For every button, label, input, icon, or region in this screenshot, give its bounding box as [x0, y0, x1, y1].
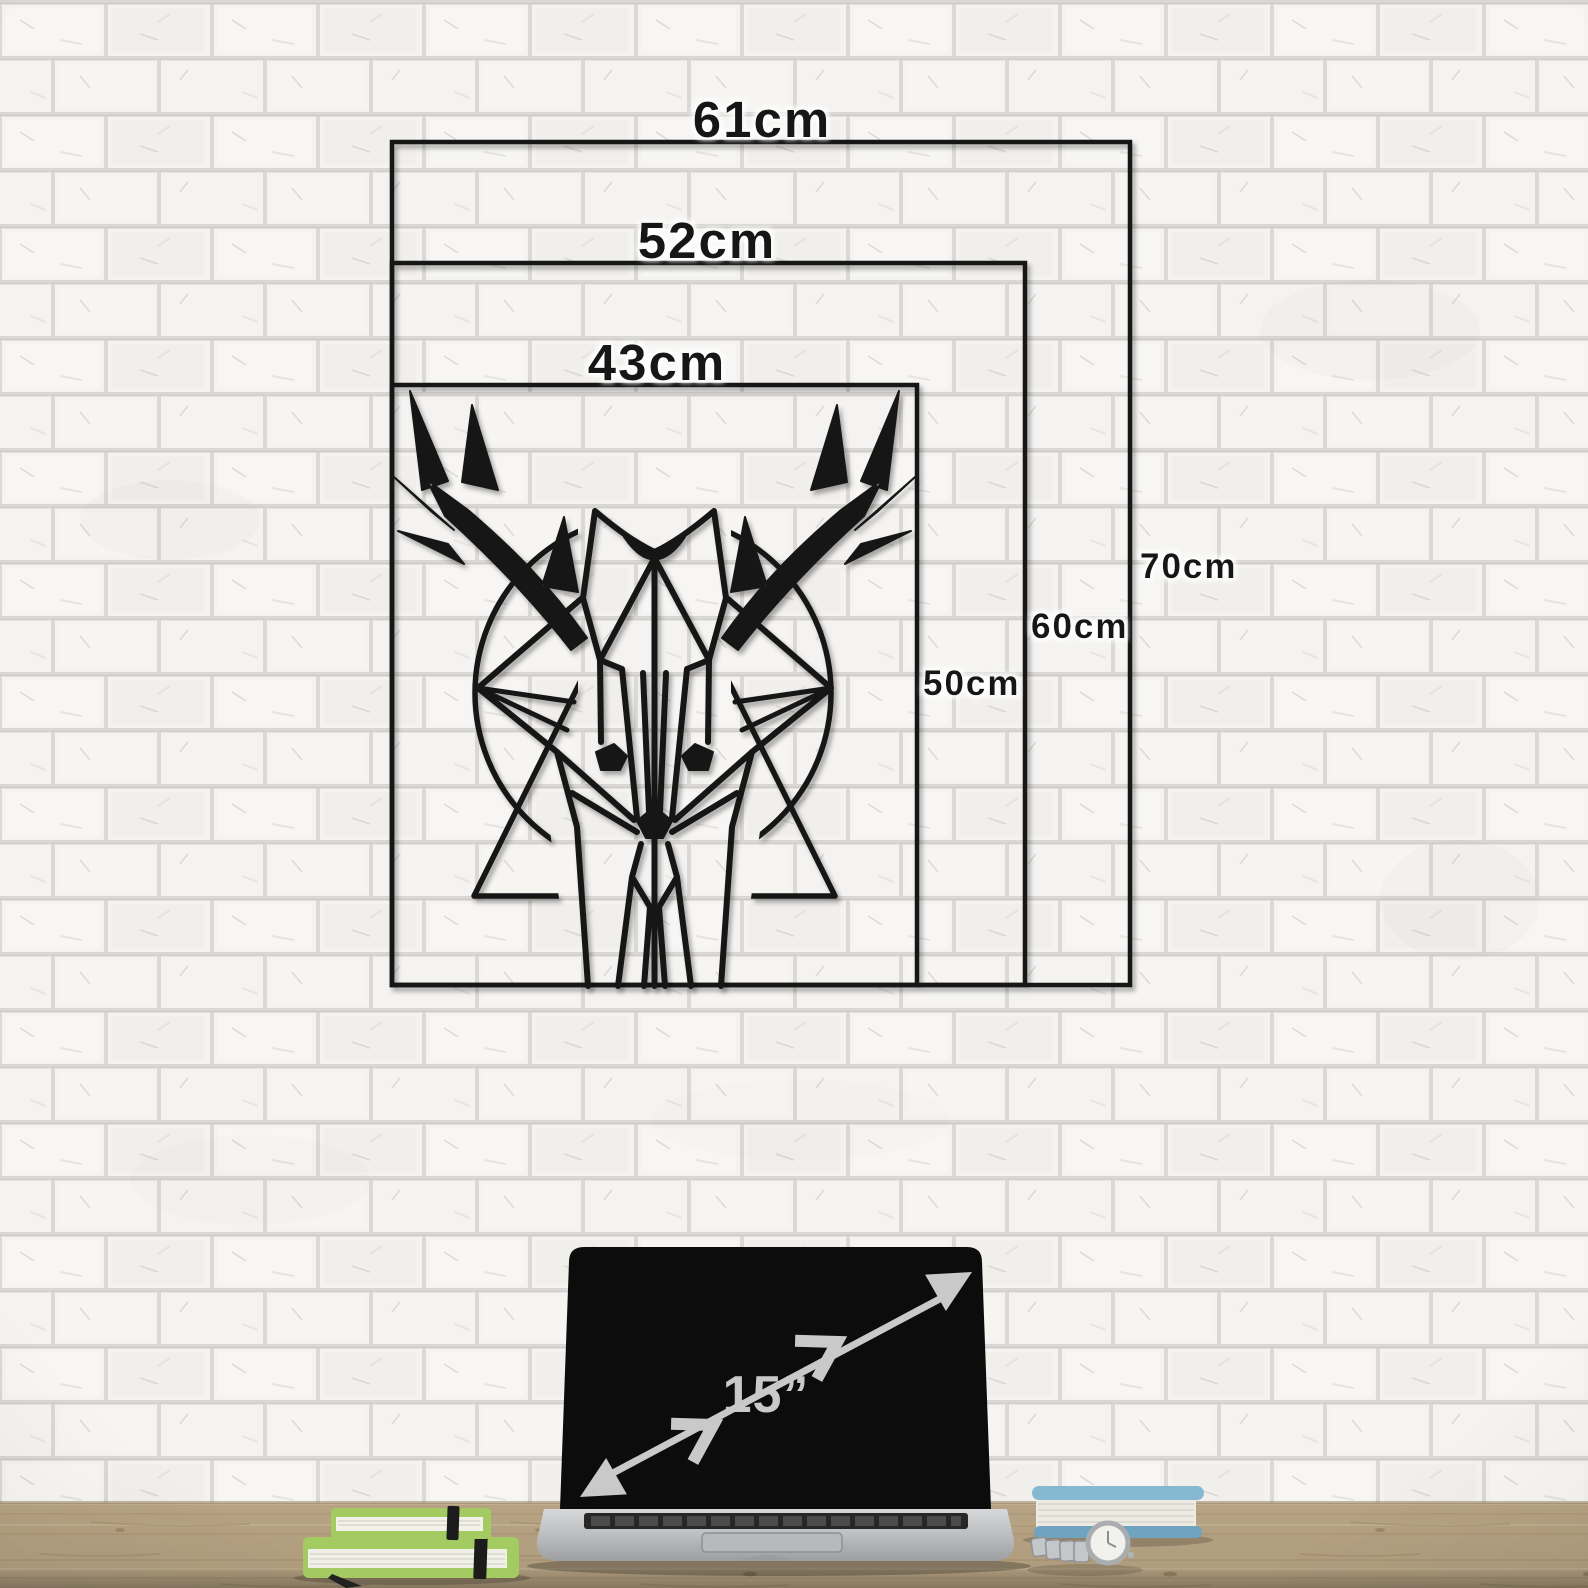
vignette — [0, 0, 1588, 1588]
product-size-diagram: 61cm 52cm 43cm 70cm 60cm 50cm — [0, 0, 1588, 1588]
